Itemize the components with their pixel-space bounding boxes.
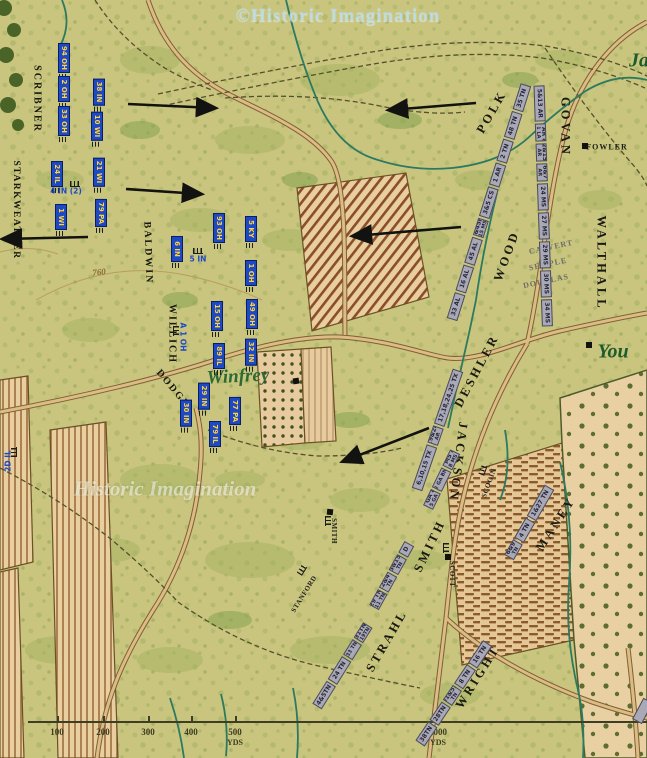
battle-map: WinfreyYouJaFOWLERSMITHSCOTTSTANFORDSCOG… [0, 0, 647, 758]
place-label: SCOTT [448, 561, 456, 587]
confederate-unit-text: 16 AL [459, 269, 470, 289]
confederate-brigade-label: STRAHL [363, 607, 411, 675]
confederate-unit-segment: 32&45MS15 MS [473, 218, 489, 238]
confederate-unit-segment: 33 TN [343, 639, 362, 660]
union-unit-marker: 93 OH [213, 213, 225, 243]
confederate-unit-segment: 4 TN [514, 518, 535, 543]
confederate-line-wright: 38TN28TN51&52TN8 TN16 TN [415, 640, 492, 746]
union-unit-marker: 89 IL [213, 343, 225, 369]
confederate-unit-segment: 27 MS [538, 212, 550, 239]
union-brigade-label: BALDWIN [141, 221, 154, 284]
watermark-middle: Historic Imagination [74, 477, 257, 502]
confederate-unit-segment: 12&47TN [379, 572, 397, 593]
confederate-unit-text: 34 MS [544, 302, 550, 323]
confederate-unit-text: D [403, 546, 410, 553]
confederate-unit-text: AR [537, 168, 542, 176]
confederate-unit-text: 1 AR [493, 167, 503, 183]
confederate-unit-text: TN [386, 579, 394, 588]
confederate-unit-segment: 2&15AR [536, 143, 548, 161]
confederate-unit-text: 33 AL [451, 297, 462, 317]
confederate-unit-segment: 1&27 TN [527, 485, 555, 522]
confederate-unit-segment: 1 AR [489, 162, 506, 187]
house-icon [586, 342, 592, 348]
confederate-unit-text: 4&5TN [316, 684, 333, 706]
confederate-unit-text: 1&27 TN [531, 489, 550, 517]
confederate-unit-text: 29 MS [542, 244, 548, 265]
confederate-unit-text: 35 TN [516, 88, 527, 108]
place-label: You [597, 341, 628, 364]
union-battery-label: 4 IN (2) [50, 187, 82, 196]
union-unit-marker: 6 IN [171, 236, 183, 262]
confederate-unit-text: 28TN [433, 705, 447, 723]
union-unit-marker: 24 IL [51, 161, 63, 187]
union-unit-marker: 32 IN [245, 339, 257, 366]
confederate-unit-segment: 13&154TN [389, 554, 407, 575]
union-unit-marker: 1 WI [55, 204, 67, 230]
union-unit-marker: 21 WI [93, 158, 105, 187]
confederate-unit-text: AR [435, 432, 442, 441]
union-unit-marker: 1 OH [245, 260, 257, 286]
battery-marker-icon [193, 248, 203, 254]
confederate-battery-label: CALVERT [528, 238, 574, 256]
battery-marker-icon [443, 543, 449, 553]
place-label: FOWLER [586, 143, 628, 152]
confederate-brigade-label: WALTHALL [594, 215, 609, 310]
union-unit-marker: 5 KY [245, 216, 257, 242]
confederate-unit-text: TN [396, 561, 404, 570]
confederate-unit-segment: 2 TN [496, 139, 513, 164]
confederate-unit-text: 3&5 CS [483, 190, 496, 215]
confederate-unit-segment: 45 AL [464, 237, 483, 266]
confederate-unit-segment: 24 MS [537, 183, 549, 210]
union-unit-marker: 15 OH [211, 301, 223, 331]
union-battery-label: 5 IN [190, 255, 207, 264]
confederate-unit-text: 1 LA [535, 126, 540, 138]
confederate-brigade-label: GOVAN [558, 97, 573, 157]
confederate-unit-segment: 6&9TN [504, 539, 523, 560]
confederate-unit-segment: 29 MS [539, 241, 551, 268]
place-label: Ja [629, 50, 647, 73]
house-icon [327, 509, 334, 516]
union-unit-marker: 94 OH [58, 43, 70, 73]
confederate-unit-text: 38TN [419, 725, 433, 743]
union-unit-marker: 29 IN [198, 383, 210, 410]
confederate-unit-text: TN [512, 547, 520, 556]
union-unit-marker: 77 PA [229, 397, 241, 425]
confederate-unit-text: 27 MS [541, 215, 547, 236]
confederate-unit-text: 5&13 AR [536, 89, 543, 118]
union-unit-marker: 10 WI [91, 112, 103, 141]
confederate-unit-segment: 29 TN11 TN [369, 589, 387, 610]
confederate-unit-text: 4 TN [518, 522, 530, 538]
confederate-unit-segment: 34 MS [541, 299, 553, 326]
confederate-line-govan-walthall: 5&13 AR8 AR &1 LA2&15AR6&7AR24 MS27 MS29… [534, 85, 553, 326]
confederate-unit-text: 6,10,15 TX [416, 450, 433, 486]
confederate-unit-text: AR [536, 148, 541, 156]
confederate-unit-text: 33 TN [346, 641, 359, 657]
confederate-unit-segment: 4&5TN [312, 681, 336, 710]
confederate-unit-segment: 6&7AR [536, 163, 548, 181]
confederate-line-smith: 29 TN11 TN12&47TN13&154TND [369, 541, 414, 610]
confederate-unit-segment: 3&5 CS [479, 186, 499, 219]
watermark-top: ©Historic Imagination [236, 5, 441, 27]
confederate-unit-segment: 24 TN [328, 656, 352, 685]
confederate-unit-segment: 48 TN [504, 111, 523, 140]
confederate-unit-segment: 16 AL [455, 264, 474, 293]
confederate-unit-text: 24 TN [332, 661, 347, 681]
house-icon [582, 143, 588, 149]
union-brigade-label: SCRIBNER [32, 65, 43, 133]
battery-marker-icon [297, 564, 307, 576]
battery-marker-icon [478, 464, 487, 475]
confederate-unit-text: 48 TN [508, 116, 519, 136]
house-icon [445, 554, 451, 560]
union-unit-marker: 49 OH [246, 299, 258, 329]
confederate-unit-segment: 28TN [429, 701, 451, 726]
battery-marker-icon [11, 447, 17, 457]
battery-marker-icon [173, 326, 179, 336]
confederate-unit-text: 30 MS [543, 273, 549, 294]
confederate-unit-segment: 30 MS [540, 270, 552, 297]
union-unit-marker: 79 IL [209, 421, 221, 447]
confederate-unit-segment: 8 AR &1 LA [535, 123, 547, 141]
confederate-line-edge-fragment [632, 698, 647, 724]
confederate-unit-segment [632, 698, 647, 724]
battery-marker-icon [325, 516, 331, 526]
confederate-unit-text: 2 TN [500, 143, 510, 159]
confederate-unit-segment: 38TN [415, 722, 437, 747]
confederate-unit-segment: 5&13 AR [534, 85, 546, 121]
confederate-unit-segment: 35 TN [512, 84, 531, 113]
union-unit-marker: 2 OH [58, 76, 70, 102]
union-unit-marker: 33 OH [58, 106, 70, 136]
confederate-unit-text: 45 AL [468, 241, 479, 261]
confederate-unit-segment: 19&24AR [427, 425, 443, 446]
place-label: SMITH [330, 518, 338, 544]
union-battery-label: A 1 OH [179, 323, 188, 352]
confederate-brigade-label: WOOD [491, 229, 523, 284]
house-icon [293, 378, 300, 385]
union-unit-marker: 38 IN [93, 79, 105, 106]
union-unit-marker: 30 IN [180, 400, 192, 427]
battery-marker-icon [70, 181, 80, 187]
confederate-unit-segment: 33 AL [447, 292, 466, 321]
confederate-unit-segment: 31TN19TN [354, 622, 373, 643]
confederate-unit-segment: 1 GA &5 GA [423, 489, 441, 510]
labels-layer: WinfreyYouJaFOWLERSMITHSCOTTSTANFORDSCOG… [0, 0, 647, 758]
confederate-unit-text: 24 MS [540, 186, 546, 207]
confederate-brigade-label: POLK [474, 88, 511, 137]
union-brigade-label: STARKWEATHER [11, 161, 21, 260]
place-label: 760 [92, 266, 106, 277]
place-label: STANFORD [289, 574, 318, 614]
union-unit-marker: 79 PA [95, 199, 107, 227]
